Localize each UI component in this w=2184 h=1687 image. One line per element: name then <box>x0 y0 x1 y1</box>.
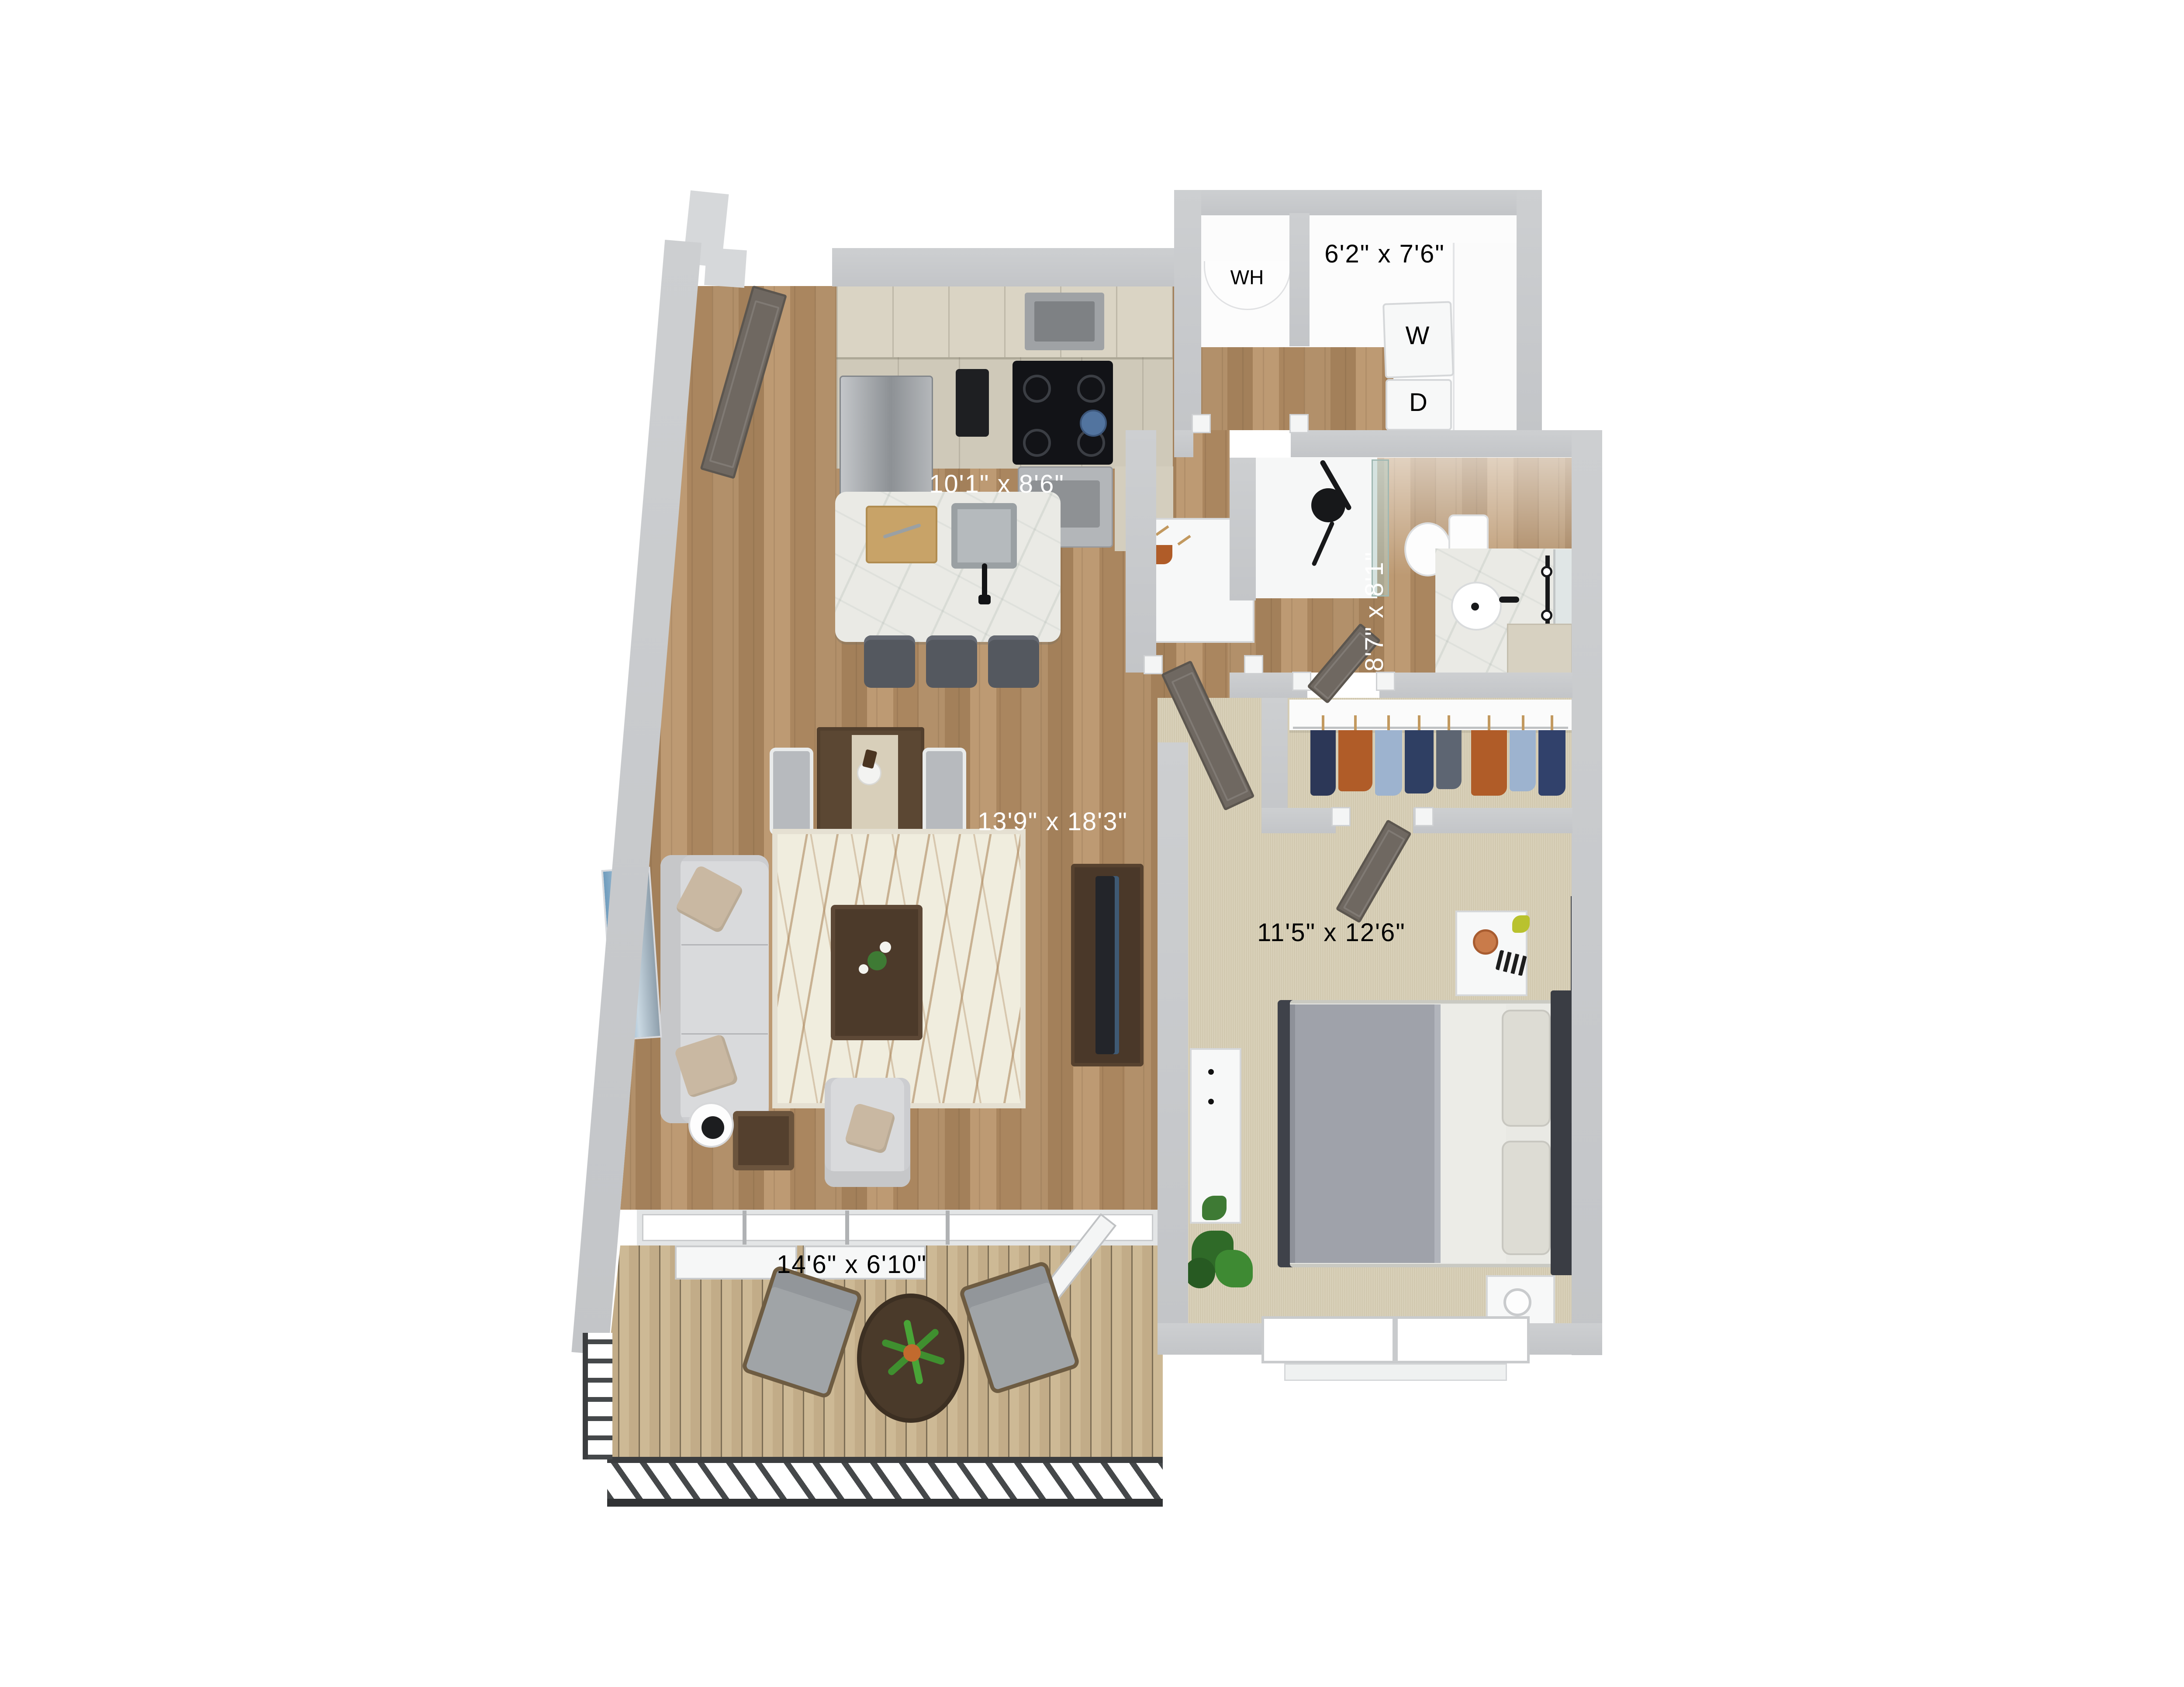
hanging-clothes <box>1338 730 1372 791</box>
bathroom-bottom-wall <box>1379 673 1572 698</box>
hanging-clothes <box>1471 730 1507 796</box>
sofa-cushion-line <box>681 944 768 945</box>
bathroom-dimension-label: 8'7" x 8'1" <box>1360 537 1388 686</box>
laundry-bath-wall <box>1174 430 1193 457</box>
balcony-railing-side <box>583 1333 612 1459</box>
floorplan-page: { "labels": { "laundry_dim": "6'2\" x 7'… <box>0 0 2184 1687</box>
laundry-right-wall <box>1517 190 1542 431</box>
bedroom-window-mullion <box>1393 1316 1398 1363</box>
hanging-clothes <box>1510 730 1536 791</box>
closet-hanger <box>1522 715 1524 730</box>
vanity-faucet <box>1499 597 1519 603</box>
closet-hanger <box>1354 715 1357 730</box>
bed-pillow <box>1502 1010 1551 1127</box>
coffee-maker <box>956 369 989 437</box>
laundry-top-wall <box>1174 190 1542 215</box>
door-jamb <box>1244 655 1263 674</box>
washer-label: W <box>1393 321 1441 350</box>
nightstand-plant <box>1512 915 1530 933</box>
closet-hanger <box>1551 715 1553 730</box>
laundry-left-wall <box>1174 190 1201 431</box>
closet-shelf <box>1289 700 1572 730</box>
closet-bottom-wall <box>1261 808 1336 833</box>
bar-stool <box>988 635 1039 688</box>
burner <box>1023 429 1051 457</box>
bar-stool <box>926 635 977 688</box>
island-faucet-head <box>978 595 991 604</box>
dryer-label: D <box>1394 388 1442 417</box>
closet-hanger <box>1418 715 1420 730</box>
closet-hanger <box>1488 715 1490 730</box>
window-mullion <box>946 1211 950 1245</box>
coffee-table-flowers <box>867 951 887 970</box>
side-table <box>733 1111 794 1170</box>
hanging-clothes <box>1436 730 1462 789</box>
bed-sheet <box>1441 1004 1506 1263</box>
dresser-knob <box>1208 1069 1214 1075</box>
hanging-clothes <box>1538 730 1565 796</box>
nightstand-clock <box>1473 929 1498 955</box>
hall-left-wall <box>1126 430 1156 673</box>
water-heater-divider-wall <box>1289 213 1310 346</box>
dresser-knob <box>1208 1099 1214 1104</box>
door-jamb <box>1289 414 1309 433</box>
sofa-cushion-line <box>681 1033 768 1035</box>
microwave-window <box>1034 301 1095 342</box>
coffee-table-flowers <box>880 942 891 953</box>
hanging-clothes <box>1375 730 1402 796</box>
table-runner <box>852 735 898 837</box>
dresser-plant <box>1202 1196 1227 1220</box>
living-dimension-label: 13'9" x 18'3" <box>935 807 1171 836</box>
hanging-clothes <box>1405 730 1434 793</box>
door-jamb <box>1331 807 1351 826</box>
balcony-railing-front <box>607 1457 1163 1507</box>
bedroom-dimension-label: 11'5" x 12'6" <box>1222 918 1441 947</box>
window-mullion <box>743 1211 746 1245</box>
laundry-counter <box>1453 243 1517 431</box>
water-heater-label: WH <box>1214 266 1280 289</box>
nightstand-lamp <box>1503 1288 1531 1316</box>
closet-rod <box>1293 727 1568 729</box>
door-jamb <box>1144 655 1163 674</box>
door-jamb <box>1414 807 1434 826</box>
closet-hanger <box>1448 715 1450 730</box>
bedroom-window-ledge <box>1284 1363 1507 1381</box>
shower-floor <box>1256 458 1377 598</box>
sconce-bulb <box>1541 566 1552 577</box>
hanging-clothes <box>1310 730 1336 796</box>
bedroom-floor-plant <box>1215 1250 1253 1287</box>
sconce-bulb <box>1541 610 1552 621</box>
cutting-board <box>866 506 937 563</box>
kitchen-top-wall <box>832 248 1174 286</box>
bedroom-floor-plant <box>1185 1258 1215 1288</box>
dining-chair <box>770 748 813 835</box>
closet-hanger <box>1387 715 1390 730</box>
bed-pillow <box>1502 1141 1551 1255</box>
closet-bottom-wall <box>1413 808 1572 833</box>
burner <box>1077 375 1105 403</box>
burner <box>1023 375 1051 403</box>
coffee-table <box>831 905 923 1040</box>
shower-hall-wall <box>1230 458 1256 600</box>
living-window-glass <box>642 1214 1153 1241</box>
island-sink <box>951 503 1017 569</box>
floor-lamp-shade <box>702 1116 724 1139</box>
right-outer-wall <box>1572 430 1602 1355</box>
bar-stool <box>864 635 915 688</box>
closet-hanger <box>1322 715 1324 730</box>
patio-plant-center <box>903 1344 921 1362</box>
balcony-dimension-label: 14'6" x 6'10" <box>738 1250 965 1279</box>
bed-duvet <box>1290 1004 1441 1263</box>
door-jamb <box>1192 414 1211 433</box>
vanity-sink-drain <box>1471 603 1479 611</box>
kitchen-upper-cabinets <box>836 285 1173 357</box>
kettle <box>1080 410 1107 437</box>
laundry-bath-wall <box>1291 430 1599 457</box>
tv-panel <box>1095 876 1119 1054</box>
coffee-table-flowers <box>859 964 868 974</box>
laundry-dimension-label: 6'2" x 7'6" <box>1284 239 1485 269</box>
kitchen-dimension-label: 10'1" x 8'6" <box>888 469 1106 499</box>
window-mullion <box>845 1211 849 1245</box>
